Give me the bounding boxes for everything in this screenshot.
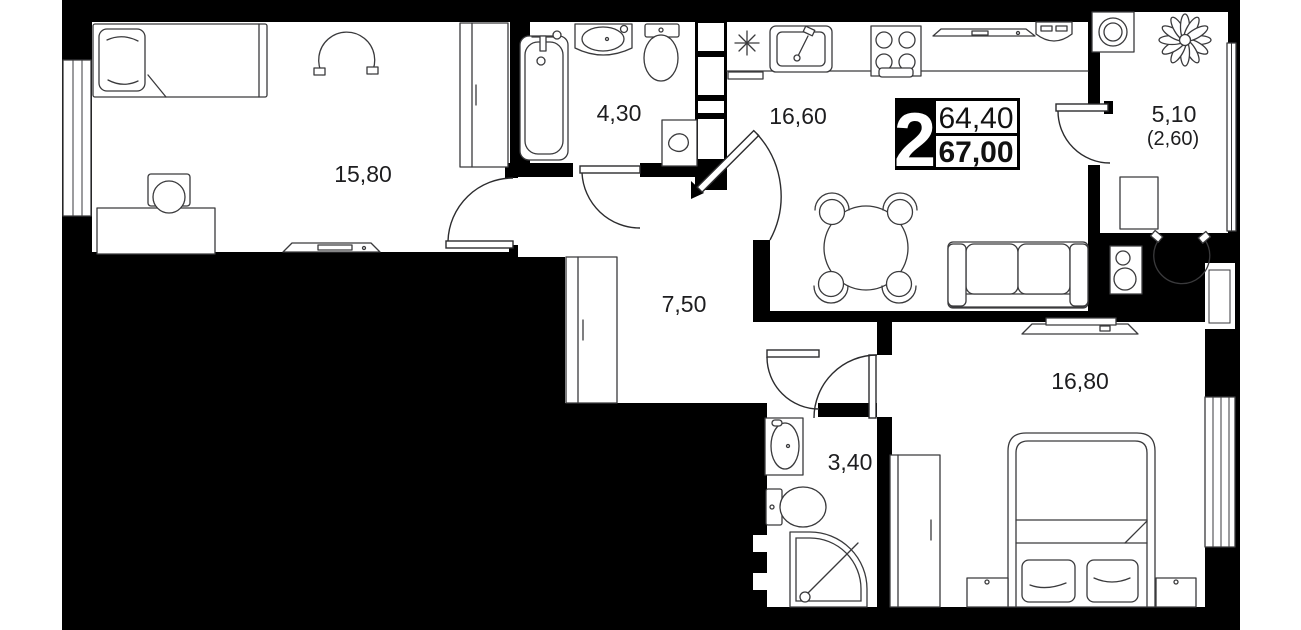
window-balcony-glazing (1227, 43, 1236, 231)
toilet-1 (644, 24, 679, 81)
ventilation-asterisk-icon (735, 31, 759, 55)
room-label-bedroom-2: 16,80 (1051, 368, 1109, 394)
hallway-wardrobe (566, 257, 617, 403)
toilet-2 (766, 487, 826, 527)
floor-plan-svg: 15,80 4,30 16,60 5,10 (2,60) 7,50 3,40 1… (0, 0, 1301, 630)
nightstand-right (1156, 578, 1196, 607)
badge-area-bottom: 67,00 (938, 136, 1013, 169)
tv-console (1022, 318, 1138, 334)
speakers (1110, 246, 1142, 294)
wardrobe-bedroom-1 (460, 23, 508, 167)
window-bedroom-1 (63, 60, 91, 216)
balcony-chair (1151, 230, 1211, 283)
sink-2 (765, 418, 803, 475)
floor-plan: 15,80 4,30 16,60 5,10 (2,60) 7,50 3,40 1… (0, 0, 1301, 630)
nightstand-left (967, 578, 1008, 607)
bathroom-sink (575, 24, 632, 55)
dining-table (814, 193, 917, 303)
washing-machine (1092, 12, 1134, 52)
balcony-table (1120, 177, 1158, 229)
room-label-hallway: 7,50 (662, 291, 707, 317)
hallway-furniture (566, 257, 617, 403)
single-bed (93, 24, 267, 97)
room-label-kitchen: 16,60 (769, 103, 827, 129)
badge-area-top: 64,40 (938, 102, 1013, 135)
window-bedroom-2 (1205, 397, 1235, 547)
badge-rooms-count: 2 (894, 98, 936, 183)
microwave (1036, 22, 1072, 41)
kitchen-sink (770, 26, 832, 72)
room-label-bedroom-1: 15,80 (334, 161, 392, 187)
tv-stand (283, 243, 380, 252)
room-label-balcony-secondary: (2,60) (1147, 128, 1199, 150)
wardrobe-bedroom-2 (890, 455, 940, 607)
desk (97, 208, 215, 254)
double-bed (1008, 433, 1155, 607)
room-label-bathroom-1: 4,30 (597, 100, 642, 126)
counter-tv (933, 29, 1035, 36)
sofa (948, 242, 1088, 308)
bathtub (520, 31, 568, 160)
laundry-basket (662, 120, 697, 166)
room-label-balcony: 5,10 (1152, 101, 1197, 127)
stove (871, 26, 921, 77)
room-label-bathroom-2: 3,40 (828, 449, 873, 475)
